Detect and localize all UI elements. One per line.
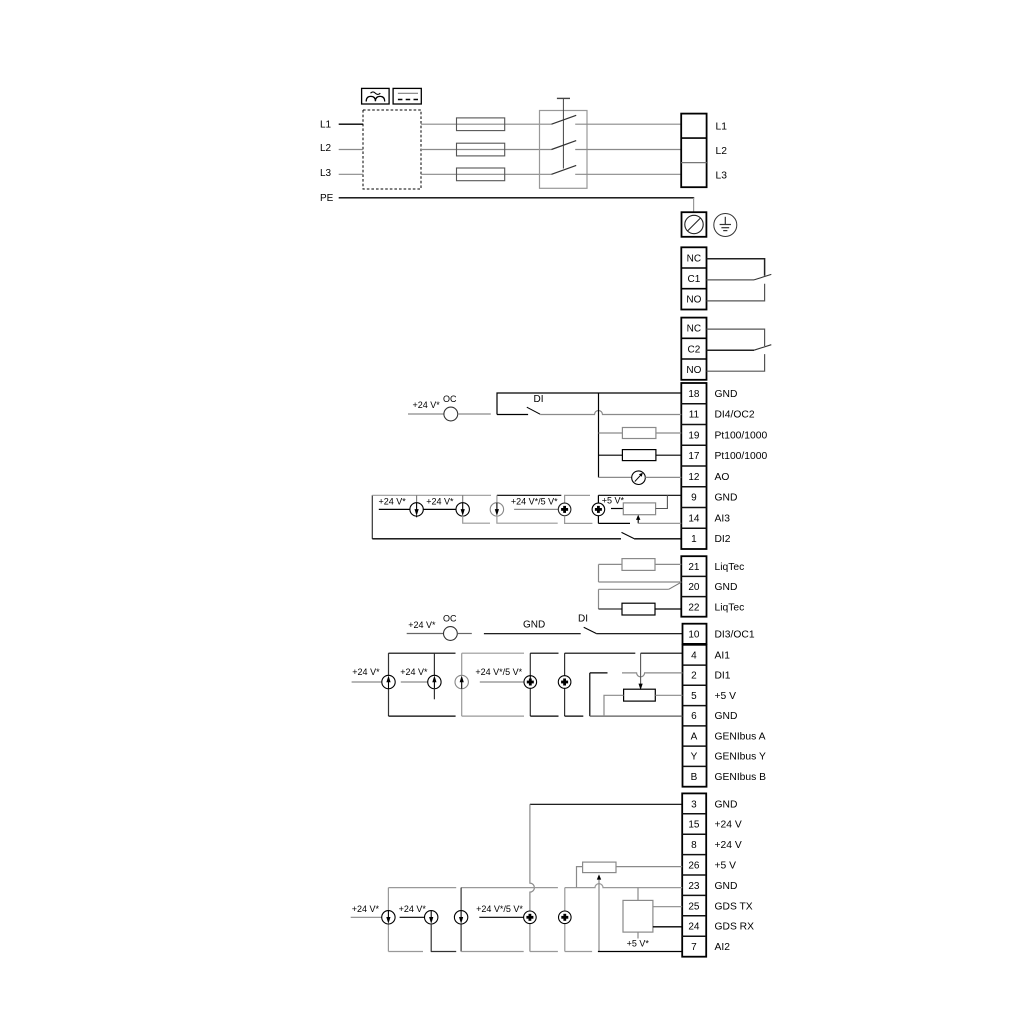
- svg-text:1: 1: [691, 534, 697, 545]
- svg-text:10: 10: [688, 629, 700, 640]
- svg-text:+24 V*: +24 V*: [400, 667, 428, 677]
- svg-text:GND: GND: [715, 881, 738, 892]
- svg-text:Pt100/1000: Pt100/1000: [715, 451, 768, 462]
- svg-text:22: 22: [688, 602, 700, 613]
- svg-text:NO: NO: [686, 295, 701, 306]
- svg-text:12: 12: [688, 472, 700, 483]
- svg-text:OC: OC: [443, 394, 457, 404]
- svg-text:AI2: AI2: [715, 942, 731, 953]
- svg-text:OC: OC: [443, 614, 457, 624]
- svg-text:GENIbus A: GENIbus A: [715, 732, 766, 743]
- svg-text:GND: GND: [715, 711, 738, 722]
- svg-text:DI1: DI1: [715, 671, 731, 682]
- svg-text:LiqTec: LiqTec: [715, 602, 745, 613]
- svg-text:17: 17: [688, 451, 700, 462]
- svg-text:L3: L3: [716, 171, 728, 182]
- svg-text:2: 2: [691, 671, 697, 682]
- svg-text:14: 14: [688, 513, 700, 524]
- svg-text:C1: C1: [688, 274, 701, 285]
- svg-text:L2: L2: [716, 146, 728, 157]
- svg-text:19: 19: [688, 430, 700, 441]
- svg-text:AI1: AI1: [715, 651, 731, 662]
- svg-text:18: 18: [688, 389, 700, 400]
- svg-text:C2: C2: [688, 344, 701, 355]
- svg-text:+24 V*/5 V*: +24 V*/5 V*: [476, 904, 523, 914]
- svg-text:11: 11: [689, 410, 700, 421]
- svg-text:15: 15: [688, 820, 700, 831]
- svg-text:LiqTec: LiqTec: [715, 562, 745, 573]
- svg-text:+24 V*: +24 V*: [399, 904, 427, 914]
- svg-text:DI2: DI2: [715, 534, 731, 545]
- svg-text:L2: L2: [320, 143, 332, 154]
- svg-text:+24 V*: +24 V*: [352, 667, 380, 677]
- svg-text:GND: GND: [715, 493, 738, 504]
- svg-text:GND: GND: [715, 582, 738, 593]
- svg-text:5: 5: [691, 691, 697, 702]
- svg-text:GND: GND: [715, 799, 738, 810]
- svg-text:21: 21: [688, 562, 700, 573]
- svg-text:DI3/OC1: DI3/OC1: [715, 629, 755, 640]
- svg-text:NO: NO: [686, 365, 701, 376]
- svg-text:+24 V*: +24 V*: [413, 400, 441, 410]
- svg-text:DI: DI: [534, 394, 544, 405]
- svg-text:+5 V: +5 V: [715, 861, 737, 872]
- svg-text:8: 8: [691, 840, 697, 851]
- svg-text:GENIbus B: GENIbus B: [715, 772, 767, 783]
- svg-text:L3: L3: [320, 168, 332, 179]
- svg-text:NC: NC: [687, 253, 701, 264]
- svg-text:+5 V*: +5 V*: [627, 938, 650, 948]
- svg-text:AO: AO: [715, 472, 730, 483]
- svg-text:+24 V*: +24 V*: [408, 620, 436, 630]
- svg-text:A: A: [691, 732, 698, 743]
- svg-text:L1: L1: [716, 122, 728, 133]
- svg-text:B: B: [691, 772, 698, 783]
- svg-text:NC: NC: [687, 324, 701, 335]
- svg-text:GDS RX: GDS RX: [715, 922, 755, 933]
- svg-text:9: 9: [691, 493, 697, 504]
- svg-text:+24 V: +24 V: [715, 820, 742, 831]
- svg-text:L1: L1: [320, 120, 332, 131]
- svg-text:GENIbus Y: GENIbus Y: [715, 752, 766, 763]
- svg-text:DI: DI: [578, 614, 588, 625]
- svg-text:DI4/OC2: DI4/OC2: [715, 410, 755, 421]
- svg-text:20: 20: [688, 582, 700, 593]
- svg-text:6: 6: [691, 711, 697, 722]
- svg-text:4: 4: [691, 651, 697, 662]
- svg-text:+24 V*/5 V*: +24 V*/5 V*: [511, 497, 558, 507]
- svg-text:3: 3: [691, 799, 697, 810]
- svg-text:+24 V*: +24 V*: [352, 904, 380, 914]
- svg-text:+24 V*: +24 V*: [379, 497, 407, 507]
- svg-text:24: 24: [688, 922, 700, 933]
- svg-text:26: 26: [688, 861, 700, 872]
- svg-text:+5 V: +5 V: [715, 691, 737, 702]
- svg-text:+24 V*: +24 V*: [426, 497, 454, 507]
- svg-text:Pt100/1000: Pt100/1000: [715, 430, 768, 441]
- svg-text:GND: GND: [523, 620, 545, 631]
- svg-text:AI3: AI3: [715, 513, 731, 524]
- svg-text:+5 V*: +5 V*: [602, 495, 625, 505]
- svg-text:+24 V: +24 V: [715, 840, 742, 851]
- svg-text:23: 23: [688, 881, 700, 892]
- svg-text:Y: Y: [691, 752, 698, 763]
- svg-text:GND: GND: [715, 389, 738, 400]
- svg-text:PE: PE: [320, 193, 334, 204]
- svg-text:25: 25: [688, 901, 700, 912]
- svg-text:7: 7: [691, 942, 697, 953]
- svg-text:GDS TX: GDS TX: [715, 901, 753, 912]
- svg-text:+24 V*/5 V*: +24 V*/5 V*: [475, 667, 522, 677]
